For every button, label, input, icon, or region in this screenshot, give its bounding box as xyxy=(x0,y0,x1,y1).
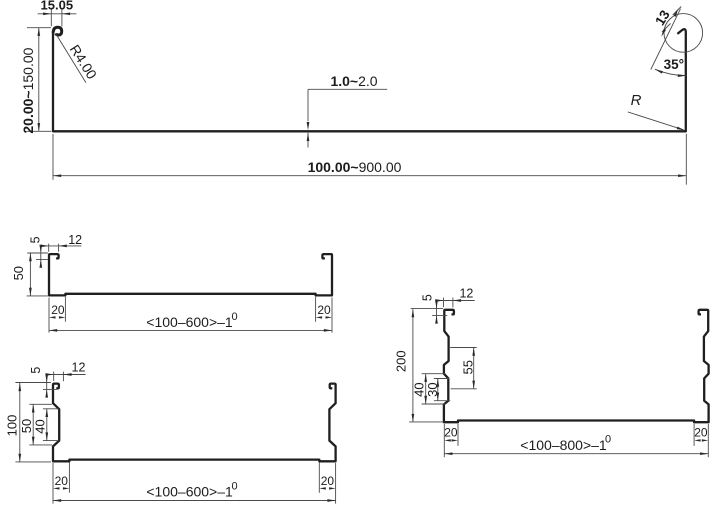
svg-text:R: R xyxy=(631,92,642,109)
svg-text:100: 100 xyxy=(5,415,20,437)
svg-text:<100–800>–1: <100–800>–1 xyxy=(520,437,607,453)
svg-text:1.0~2.0: 1.0~2.0 xyxy=(330,73,377,89)
svg-text:20: 20 xyxy=(317,303,331,317)
svg-text:200: 200 xyxy=(394,350,409,372)
svg-text:R4.00: R4.00 xyxy=(67,42,100,82)
svg-text:12: 12 xyxy=(68,233,82,247)
svg-text:5: 5 xyxy=(28,236,42,243)
svg-text:55: 55 xyxy=(460,360,475,374)
svg-text:20: 20 xyxy=(444,425,458,439)
svg-text:20.00~150.00: 20.00~150.00 xyxy=(20,47,36,133)
svg-text:5: 5 xyxy=(421,294,435,301)
svg-text:0: 0 xyxy=(232,480,238,492)
svg-text:12: 12 xyxy=(72,361,86,375)
svg-text:0: 0 xyxy=(605,434,611,446)
svg-text:20: 20 xyxy=(321,474,335,488)
svg-text:<100–600>–1: <100–600>–1 xyxy=(146,314,233,330)
svg-text:50: 50 xyxy=(11,266,26,280)
svg-text:13: 13 xyxy=(652,7,673,28)
svg-text:20: 20 xyxy=(51,303,65,317)
svg-text:35°: 35° xyxy=(664,57,684,72)
svg-text:<100–600>–1: <100–600>–1 xyxy=(146,484,233,500)
svg-text:15.05: 15.05 xyxy=(41,0,74,13)
svg-text:0: 0 xyxy=(231,311,237,323)
svg-text:40: 40 xyxy=(33,419,48,433)
svg-text:30: 30 xyxy=(425,382,440,396)
svg-text:12: 12 xyxy=(459,287,473,301)
svg-text:100.00~900.00: 100.00~900.00 xyxy=(308,159,402,175)
svg-text:20: 20 xyxy=(694,425,708,439)
svg-text:20: 20 xyxy=(55,474,69,488)
svg-text:5: 5 xyxy=(29,367,43,374)
